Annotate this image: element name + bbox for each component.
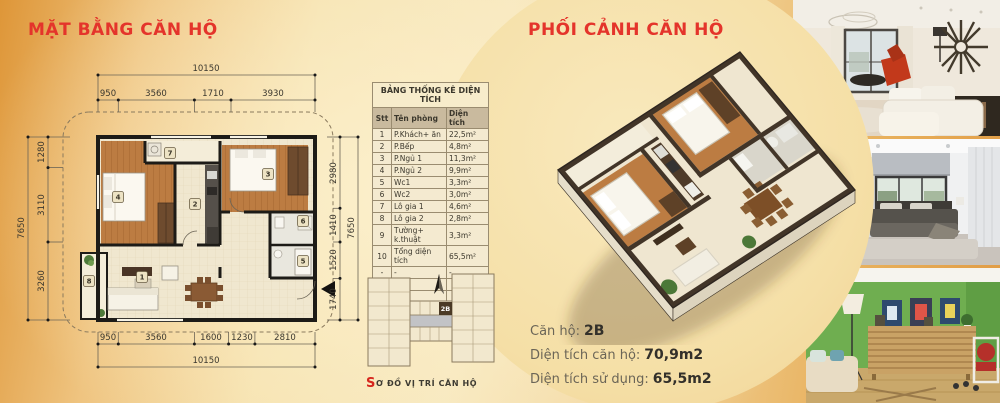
table-cell: 4,6m² (447, 201, 489, 213)
corridor (410, 315, 452, 327)
room-badge-7: 7 (168, 150, 173, 158)
dim-top-3: 1710 (202, 89, 224, 99)
table-cell: Wc2 (392, 189, 447, 201)
area-table-title: BẢNG THỐNG KÊ DIỆN TÍCH (373, 83, 489, 108)
table-cell: 3,3m² (447, 177, 489, 189)
floor-plan-title: MẶT BẰNG CĂN HỘ (28, 20, 218, 40)
table-cell: 4,8m² (447, 141, 489, 153)
table-cell: Lô gia 2 (392, 213, 447, 225)
table-cell: 3 (373, 153, 392, 165)
sideboard-slats (868, 332, 976, 368)
table-cell: 8 (373, 213, 392, 225)
usable-area-value: 65,5m2 (653, 371, 712, 387)
table-cell: P.Ngủ 2 (392, 165, 447, 177)
dim-bottom-5: 2810 (274, 333, 296, 343)
room-badge-5: 5 (301, 258, 306, 266)
table-row: 4P.Ngủ 29,9m² (373, 165, 489, 177)
table-cell: P.Ngủ 1 (392, 153, 447, 165)
table-cell: 4 (373, 165, 392, 177)
table-cell: Tổng diện tích (392, 246, 447, 267)
table-row: 10Tổng diện tích65,5m² (373, 246, 489, 267)
unit-location-diagram: 2B (360, 268, 500, 376)
table-row: 5Wc13,3m² (373, 177, 489, 189)
table-cell: 5 (373, 177, 392, 189)
dim-left-2: 3110 (37, 194, 47, 216)
table-cell: 1 (373, 129, 392, 141)
table-cell: 11,3m² (447, 153, 489, 165)
table-cell: 3,3m² (447, 225, 489, 246)
table-cell: 9 (373, 225, 392, 246)
col-header-room: Tên phòng (392, 108, 447, 129)
dim-top-4: 3930 (262, 89, 284, 99)
table-row: 6Wc23,0m² (373, 189, 489, 201)
location-caption-text: Ơ ĐỒ VỊ TRÍ CĂN HỘ (376, 379, 477, 388)
table-row: 9Tường+ k.thuật3,3m² (373, 225, 489, 246)
room-badge-1: 1 (140, 274, 145, 282)
dim-right-total: 7650 (347, 217, 357, 239)
unit-info: Căn hộ:2B Diện tích căn hộ:70,9m2 Diện t… (530, 323, 712, 395)
table-cell: Lô gia 1 (392, 201, 447, 213)
col-header-area: Diện tích (447, 108, 489, 129)
table-row: 7Lô gia 14,6m² (373, 201, 489, 213)
dim-left-total: 7650 (17, 217, 27, 239)
dim-bottom-2: 3560 (145, 333, 167, 343)
unit-label: Căn hộ: (530, 324, 580, 339)
dim-bottom-1: 950 (100, 333, 116, 343)
unit-area-label: Diện tích căn hộ: (530, 348, 640, 363)
usable-area-label: Diện tích sử dụng: (530, 372, 649, 387)
table-cell: 7 (373, 201, 392, 213)
dim-right-4: 1740 (329, 288, 339, 310)
table-cell: Tường+ k.thuật (392, 225, 447, 246)
location-caption: SƠ ĐỒ VỊ TRÍ CĂN HỘ (366, 376, 477, 391)
dim-bottom-4: 1230 (231, 333, 253, 343)
perspective-title: PHỐI CẢNH CĂN HỘ (528, 20, 724, 40)
dim-top-1: 950 (100, 89, 116, 99)
table-row: 3P.Ngủ 111,3m² (373, 153, 489, 165)
table-cell: 3,0m² (447, 189, 489, 201)
north-arrow-icon (434, 274, 444, 294)
col-header-stt: Stt (373, 108, 392, 129)
table-row: 8Lô gia 22,8m² (373, 213, 489, 225)
table-cell: 9,9m² (447, 165, 489, 177)
dim-bottom-3: 1600 (200, 333, 222, 343)
dim-right-1: 2980 (329, 162, 339, 184)
unit-2b-label: 2B (441, 305, 451, 313)
dim-top-total: 10150 (192, 64, 219, 74)
table-cell: 65,5m² (447, 246, 489, 267)
table-cell: 6 (373, 189, 392, 201)
dim-left-1: 1280 (37, 141, 47, 163)
brochure-page: MẶT BẰNG CĂN HỘ PHỐI CẢNH CĂN HỘ (0, 0, 1000, 403)
room-badge-3: 3 (266, 171, 271, 179)
table-cell: Wc1 (392, 177, 447, 189)
table-cell: P.Bếp (392, 141, 447, 153)
location-caption-initial: S (366, 376, 376, 391)
table-cell: 2 (373, 141, 392, 153)
dim-bottom-total: 10150 (192, 356, 219, 366)
dim-left-3: 3260 (37, 270, 47, 292)
table-cell: P.Khách+ ăn (392, 129, 447, 141)
floor-plan-3d (520, 30, 870, 345)
dim-right-2: 1410 (329, 214, 339, 236)
dim-right-3: 1520 (329, 249, 339, 271)
room-badge-6: 6 (301, 218, 306, 226)
room-badge-8: 8 (87, 278, 92, 286)
room-badge-4: 4 (116, 194, 121, 202)
table-row: 2P.Bếp4,8m² (373, 141, 489, 153)
table-cell: 10 (373, 246, 392, 267)
dim-top-2: 3560 (145, 89, 167, 99)
unit-area-value: 70,9m2 (644, 347, 703, 363)
room-badge-2: 2 (193, 201, 198, 209)
floor-plan-2d: 1 2 3 4 5 6 7 8 (15, 57, 370, 392)
table-cell: 2,8m² (447, 213, 489, 225)
table-row: 1P.Khách+ ăn22,5m² (373, 129, 489, 141)
table-cell: 22,5m² (447, 129, 489, 141)
unit-value: 2B (584, 323, 604, 339)
